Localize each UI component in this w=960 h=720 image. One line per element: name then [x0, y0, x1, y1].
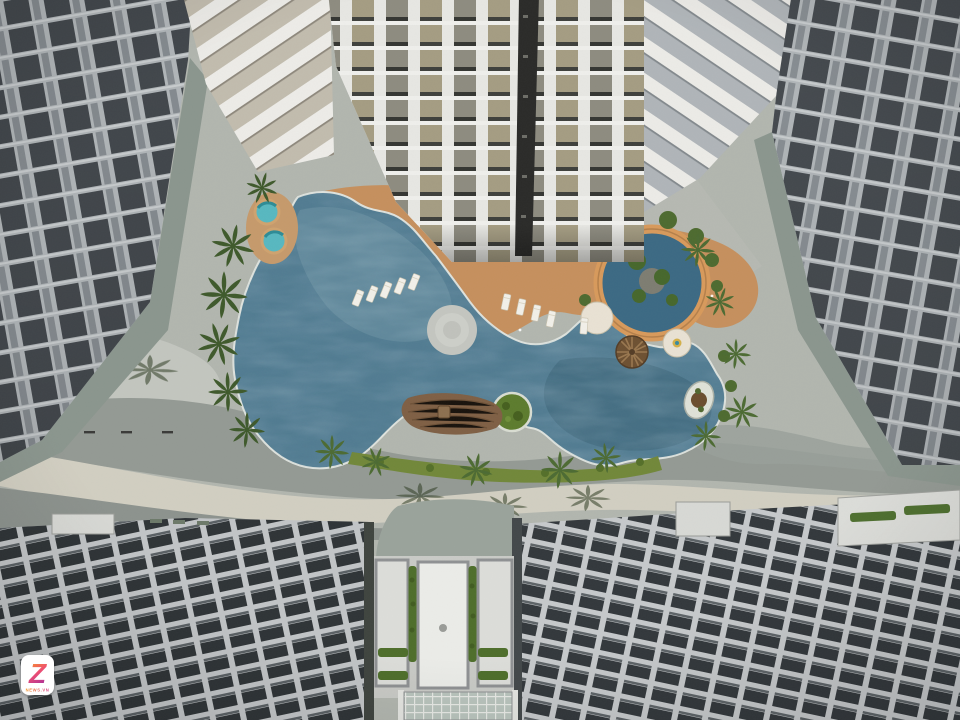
- aerial-photo: Z NEWS.VN: [0, 0, 960, 720]
- logo-letter: Z: [28, 658, 47, 689]
- vignette: [0, 0, 960, 720]
- logo-caption: NEWS.VN: [26, 688, 50, 693]
- aerial-photo-canvas: Z NEWS.VN: [0, 0, 960, 720]
- watermark-logo: Z NEWS.VN: [21, 655, 54, 695]
